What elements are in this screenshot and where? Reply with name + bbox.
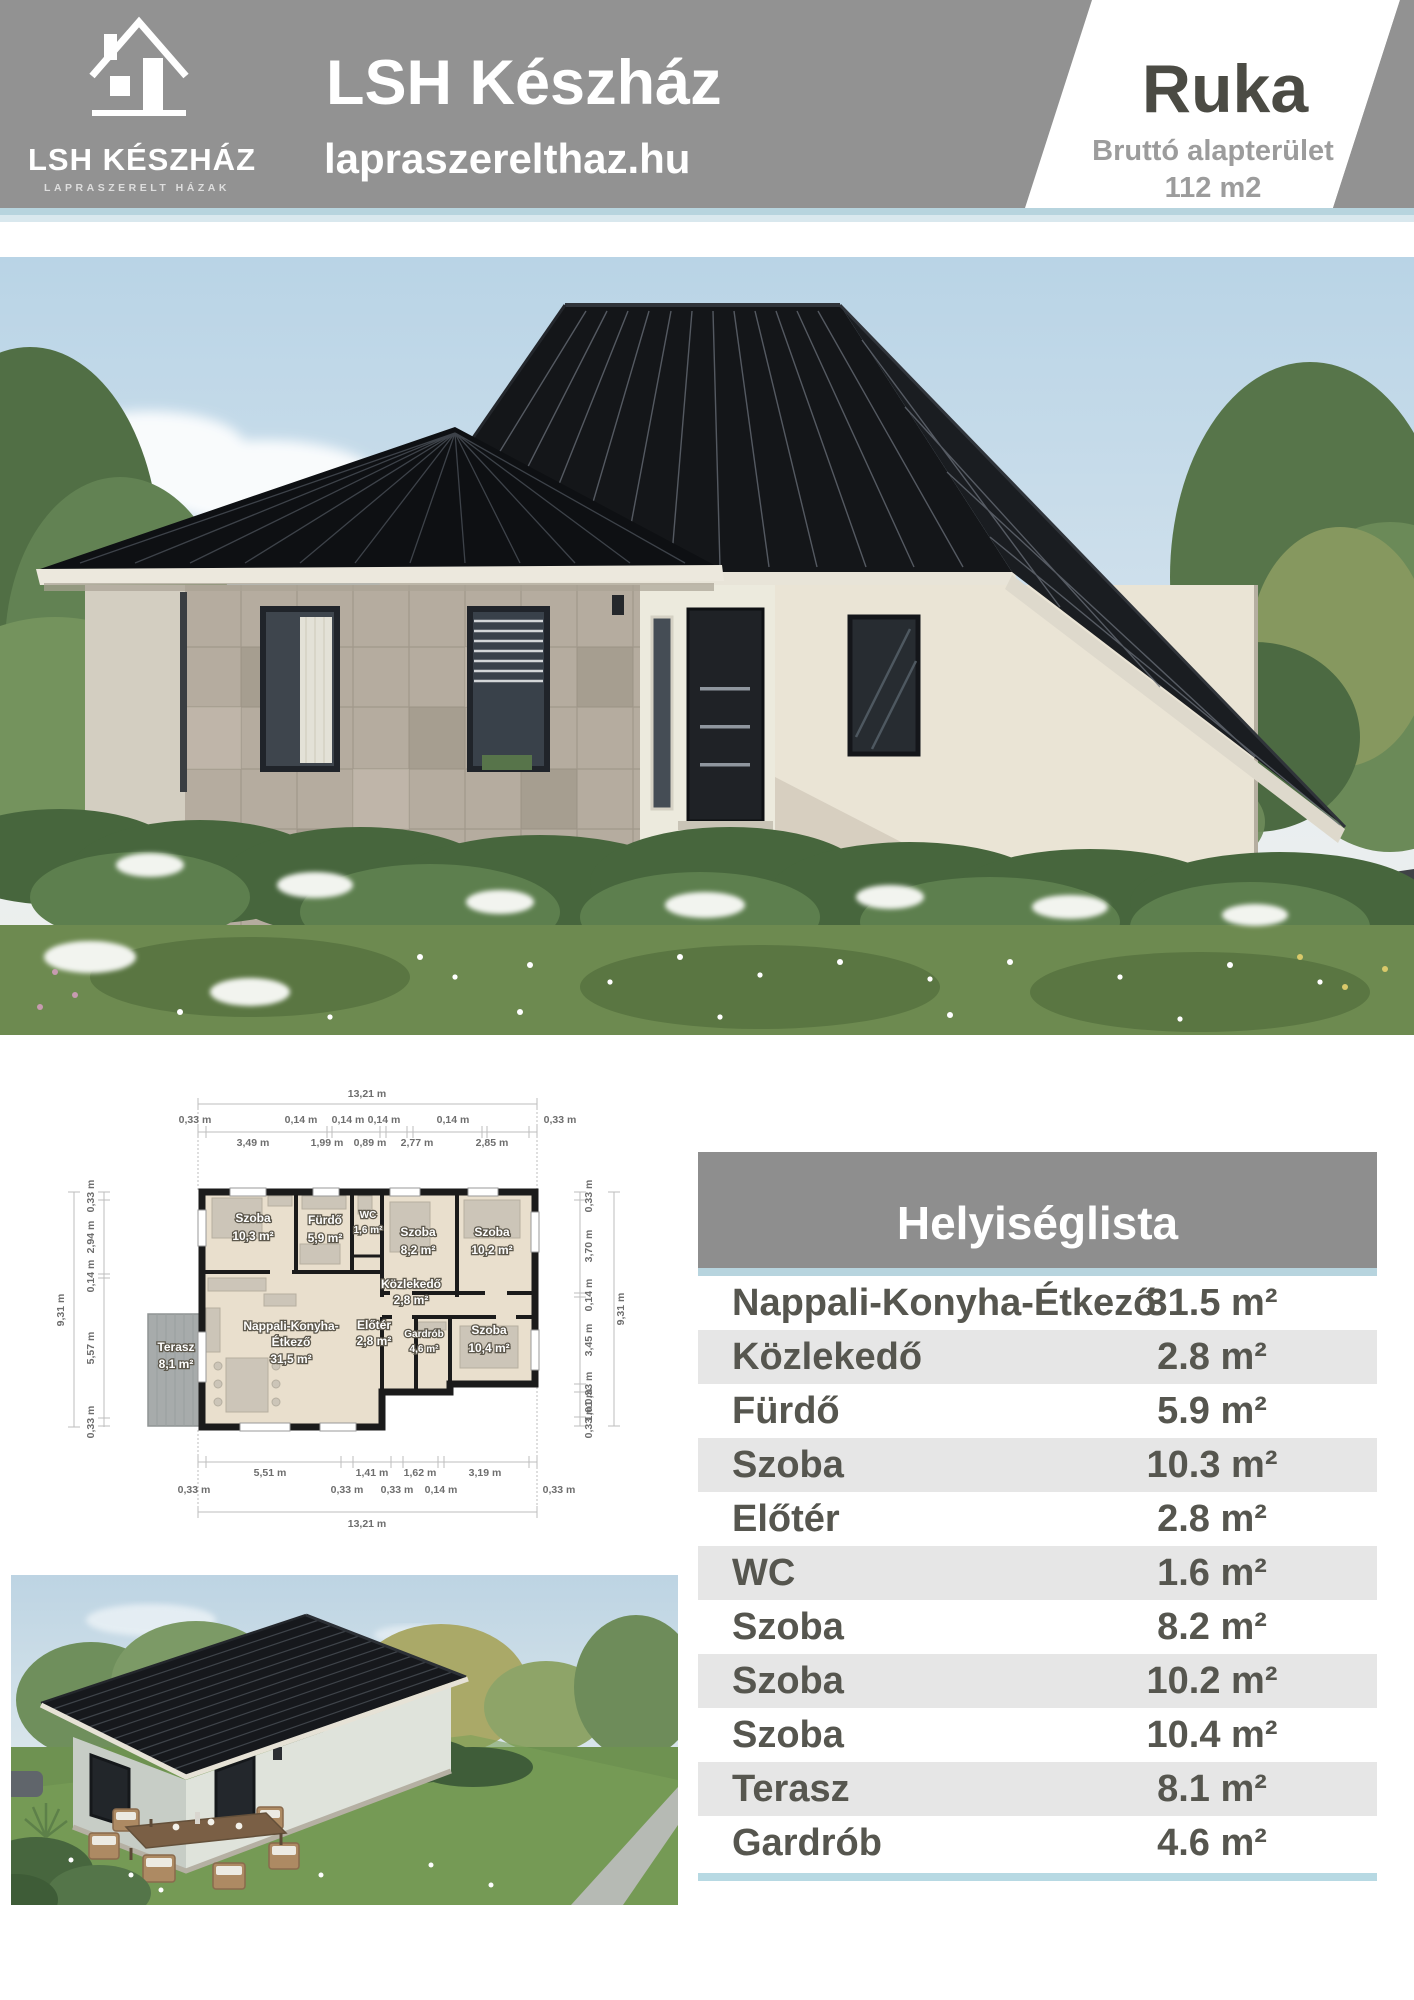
dim-label: 0,33 m: [583, 1406, 595, 1439]
svg-text:Fürdő: Fürdő: [308, 1213, 342, 1227]
table-title: Helyiséglista: [897, 1196, 1178, 1250]
svg-text:Nappali-Konyha-: Nappali-Konyha-: [243, 1319, 338, 1333]
dim-label: 2,94 m: [85, 1221, 97, 1254]
model-name: Ruka: [1142, 51, 1309, 127]
dim-label: 0,33 m: [544, 1114, 577, 1126]
model-area-label: Bruttó alapterület: [1092, 135, 1334, 167]
table-row: Gardrób4.6 m²: [698, 1816, 1377, 1870]
dim-label: 0,14 m: [368, 1114, 401, 1126]
downspout-left: [180, 592, 187, 792]
logo-tagline: LAPRASZERELT HÁZAK: [28, 182, 246, 194]
svg-text:Gardrób: Gardrób: [404, 1329, 443, 1340]
dim-label: 0,14 m: [425, 1484, 458, 1496]
logo-name: LSH KÉSZHÁZ: [28, 142, 246, 178]
table-header: Helyiséglista: [698, 1152, 1377, 1268]
brochure-page: LSH KÉSZHÁZ LAPRASZERELT HÁZAK LSH Készh…: [0, 0, 1414, 2000]
dim-label: 0,33 m: [543, 1484, 576, 1496]
blinds-window: [470, 609, 547, 769]
header-banner: LSH KÉSZHÁZ LAPRASZERELT HÁZAK LSH Készh…: [0, 0, 1414, 208]
svg-text:Szoba: Szoba: [400, 1225, 436, 1239]
table-row: Terasz8.1 m²: [698, 1762, 1377, 1816]
svg-text:Étkező: Étkező: [272, 1334, 311, 1349]
dim-label: 0,14 m: [85, 1260, 97, 1293]
table-body: Nappali-Konyha-Étkező31.5 m² Közlekedő2.…: [698, 1276, 1377, 1870]
svg-text:8,2 m²: 8,2 m²: [401, 1243, 436, 1257]
svg-text:Szoba: Szoba: [471, 1323, 507, 1337]
accent-strip-dark: [0, 208, 1414, 215]
house-front-photo: [0, 257, 1414, 1035]
dim-label: 9,31 m: [615, 1293, 627, 1326]
svg-text:10,3 m²: 10,3 m²: [232, 1229, 273, 1243]
accent-strip-light: [0, 215, 1414, 222]
house-rear-photo: [11, 1575, 678, 1905]
dim-label: 13,21 m: [348, 1518, 387, 1530]
table-row: WC1.6 m²: [698, 1546, 1377, 1600]
dim-label: 0,14 m: [583, 1279, 595, 1312]
dim-label: 1,62 m: [404, 1467, 437, 1479]
svg-text:Szoba: Szoba: [235, 1211, 271, 1225]
flower-box: [482, 755, 532, 770]
table-row: Előtér2.8 m²: [698, 1492, 1377, 1546]
floorplan-drawing: 13,21 m 0,33 m 0,14 m 0,14 m 0,14 m 0,14…: [30, 1060, 650, 1540]
dim-label: 0,33 m: [583, 1180, 595, 1213]
svg-text:10,2 m²: 10,2 m²: [471, 1243, 512, 1257]
table-row: Nappali-Konyha-Étkező31.5 m²: [698, 1276, 1377, 1330]
dim-label: 0,14 m: [437, 1114, 470, 1126]
wall-lamp: [612, 595, 624, 615]
svg-text:WC: WC: [360, 1210, 377, 1221]
dim-label: 1,41 m: [356, 1467, 389, 1479]
svg-text:1,6 m²: 1,6 m²: [354, 1225, 384, 1236]
svg-text:5,9 m²: 5,9 m²: [308, 1231, 343, 1245]
dim-label: 3,45 m: [583, 1324, 595, 1357]
dim-label: 0,14 m: [332, 1114, 365, 1126]
svg-text:31,5 m²: 31,5 m²: [270, 1352, 311, 1366]
dim-label: 3,19 m: [469, 1467, 502, 1479]
table-row: Szoba10.2 m²: [698, 1654, 1377, 1708]
dim-label: 0,33 m: [85, 1180, 97, 1213]
table-row: Szoba10.3 m²: [698, 1438, 1377, 1492]
svg-text:Közlekedő: Közlekedő: [381, 1277, 441, 1291]
house-logo-icon: [86, 12, 190, 116]
table-row: Szoba10.4 m²: [698, 1708, 1377, 1762]
model-area-value: 112 m2: [1165, 172, 1262, 204]
dim-label: 0,33 m: [178, 1484, 211, 1496]
dim-label: 0,33 m: [179, 1114, 212, 1126]
dim-label: 0,33 m: [85, 1406, 97, 1439]
table-row: Közlekedő2.8 m²: [698, 1330, 1377, 1384]
dim-label: 3,70 m: [583, 1230, 595, 1263]
table-accent-strip: [698, 1268, 1377, 1276]
svg-text:8,1 m²: 8,1 m²: [159, 1357, 194, 1371]
front-door: [688, 609, 763, 821]
website-link[interactable]: lapraszerelthaz.hu: [324, 138, 690, 180]
svg-text:2,8 m²: 2,8 m²: [394, 1293, 429, 1307]
car: [11, 1771, 43, 1797]
dim-label: 2,85 m: [476, 1137, 509, 1149]
svg-text:2,8 m²: 2,8 m²: [357, 1334, 392, 1348]
svg-text:Szoba: Szoba: [474, 1225, 510, 1239]
dim-label: 13,21 m: [348, 1088, 387, 1100]
dim-label: 2,77 m: [401, 1137, 434, 1149]
dim-label: 0,33 m: [381, 1484, 414, 1496]
svg-text:4,6 m²: 4,6 m²: [410, 1344, 440, 1355]
svg-text:Előtér: Előtér: [357, 1318, 391, 1332]
room-list-table: Helyiséglista Nappali-Konyha-Étkező31.5 …: [698, 1152, 1377, 1881]
dim-label: 3,49 m: [237, 1137, 270, 1149]
svg-text:10,4 m²: 10,4 m²: [468, 1341, 509, 1355]
page-title: LSH Készház: [326, 52, 722, 115]
dim-label: 5,51 m: [254, 1467, 287, 1479]
table-row: Fürdő5.9 m²: [698, 1384, 1377, 1438]
dim-label: 0,33 m: [331, 1484, 364, 1496]
dim-label: 9,31 m: [55, 1294, 67, 1327]
dim-label: 0,14 m: [285, 1114, 318, 1126]
dim-label: 5,57 m: [85, 1332, 97, 1365]
table-bottom-line: [698, 1873, 1377, 1881]
table-row: Szoba8.2 m²: [698, 1600, 1377, 1654]
right-window: [850, 617, 918, 754]
model-banner: Ruka Bruttó alapterület 112 m2: [990, 0, 1414, 208]
svg-text:Terasz: Terasz: [157, 1340, 194, 1354]
dim-label: 1,99 m: [311, 1137, 344, 1149]
dim-label: 0,89 m: [354, 1137, 387, 1149]
door-sidelight: [652, 617, 672, 809]
